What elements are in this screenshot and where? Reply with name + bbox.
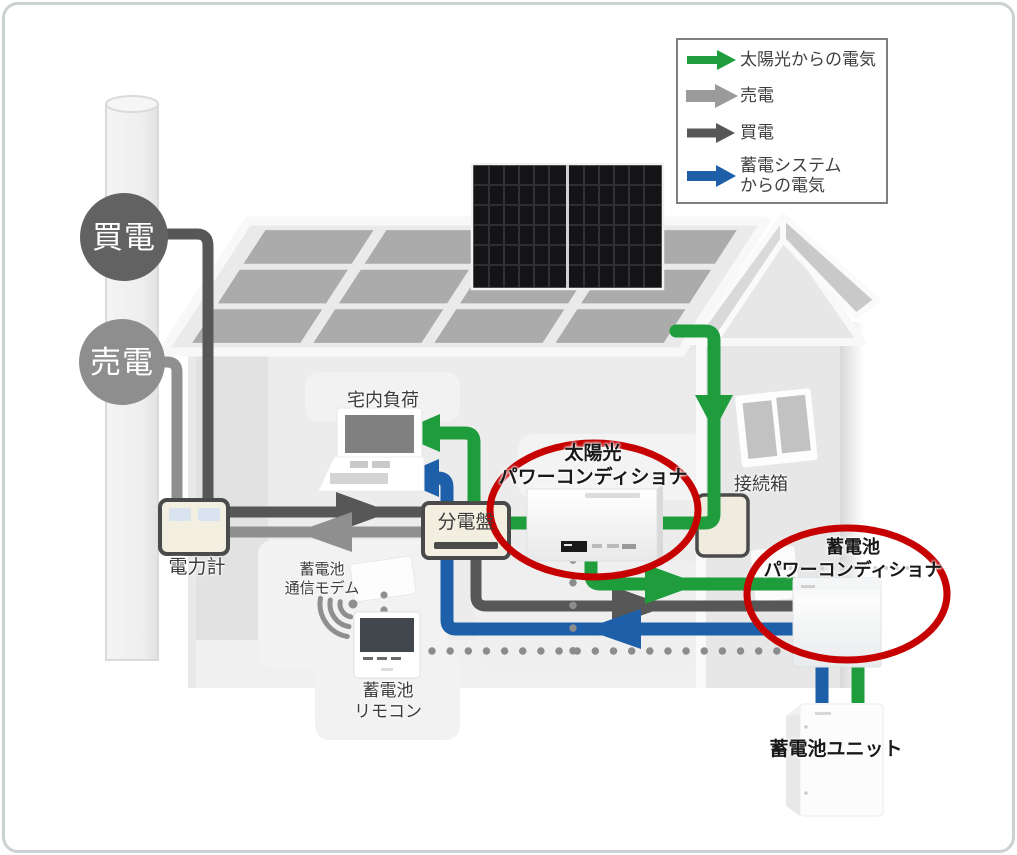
- green-arrow-icon: [684, 47, 740, 73]
- buy-arrow-icon: [684, 120, 740, 146]
- power-meter: [160, 500, 228, 554]
- buy-circle-label: 買電: [84, 222, 164, 253]
- legend-item-battery: 蓄電システム からの電気: [684, 156, 880, 196]
- sell-circle-label: 売電: [82, 347, 162, 378]
- legend-label-solar: 太陽光からの電気: [740, 50, 876, 70]
- legend-label-buy: 買電: [740, 123, 774, 143]
- battery-remote-label: 蓄電池 リモコン: [318, 680, 458, 723]
- distribution-board-label: 分電盤: [423, 511, 509, 535]
- battery-unit-label: 蓄電池ユニット: [716, 738, 956, 762]
- battery-remote: [354, 612, 420, 678]
- legend-label-sell: 売電: [740, 86, 774, 106]
- battery-modem-label: 蓄電池 通信モデム: [252, 561, 392, 599]
- blue-arrow-icon: [684, 163, 740, 189]
- home-load-label: 宅内負荷: [313, 389, 453, 412]
- legend-item-buy: 買電: [684, 120, 880, 146]
- legend-item-solar: 太陽光からの電気: [684, 47, 880, 73]
- junction-box-label: 接続箱: [701, 473, 821, 496]
- solar-power-conditioner: [527, 482, 663, 561]
- sell-arrow-icon: [684, 83, 740, 109]
- legend-item-sell: 売電: [684, 83, 880, 109]
- solar-pcs-label: 太陽光 パワーコンディショナ: [483, 442, 703, 490]
- solar-panel: [472, 164, 663, 289]
- gable-window-upper: [735, 388, 818, 468]
- solar-battery-system-diagram: 買電 売電 電力計 宅内負荷 分電盤 太陽光 パワーコンディショナ 接続箱 蓄電…: [0, 0, 1017, 855]
- power-meter-label: 電力計: [137, 556, 257, 580]
- legend: 太陽光からの電気 売電 買電 蓄電システム からの電気: [676, 38, 888, 204]
- battery-pcs-label: 蓄電池 パワーコンディショナ: [743, 536, 963, 581]
- legend-label-battery: 蓄電システム からの電気: [740, 156, 842, 196]
